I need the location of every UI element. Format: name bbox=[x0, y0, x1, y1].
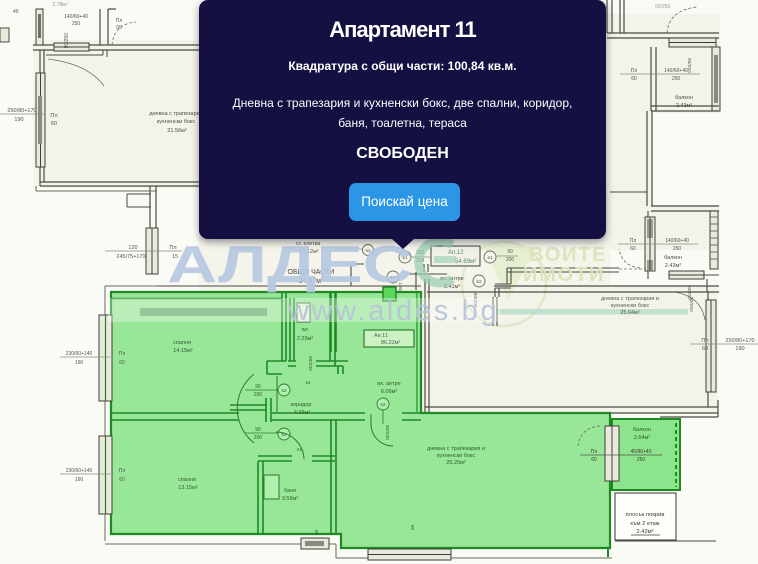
svg-text:60: 60 bbox=[119, 360, 125, 366]
svg-text:2.64м²: 2.64м² bbox=[634, 435, 650, 441]
svg-text:250: 250 bbox=[673, 246, 682, 252]
svg-text:Пл: Пл bbox=[50, 113, 57, 119]
svg-text:в2: в2 bbox=[282, 388, 287, 393]
svg-text:25.20м²: 25.20м² bbox=[446, 460, 466, 466]
svg-text:200: 200 bbox=[506, 257, 515, 263]
svg-text:60: 60 bbox=[119, 477, 125, 483]
svg-text:40/80+40: 40/80+40 bbox=[631, 449, 652, 455]
svg-text:2.43м²: 2.43м² bbox=[676, 103, 692, 109]
svg-text:Пл: Пл bbox=[701, 338, 708, 344]
svg-text:250: 250 bbox=[72, 21, 81, 27]
svg-text:60: 60 bbox=[630, 246, 636, 252]
svg-text:140/60+40: 140/60+40 bbox=[665, 238, 689, 244]
svg-text:80: 80 bbox=[314, 530, 319, 536]
svg-text:спалня: спалня bbox=[178, 477, 196, 483]
svg-text:60: 60 bbox=[702, 346, 708, 352]
svg-text:250: 250 bbox=[672, 76, 681, 82]
svg-text:80/200: 80/200 bbox=[307, 356, 313, 371]
svg-text:Ап.11: Ап.11 bbox=[374, 333, 388, 339]
svg-text:200: 200 bbox=[254, 435, 263, 441]
svg-text:3.59м²: 3.59м² bbox=[282, 496, 298, 502]
svg-text:4.35м²: 4.35м² bbox=[294, 410, 310, 416]
svg-text:230/60+140: 230/60+140 bbox=[66, 468, 93, 474]
svg-text:в2: в2 bbox=[477, 279, 482, 284]
svg-text:60: 60 bbox=[631, 76, 637, 82]
svg-text:wc: wc bbox=[301, 327, 309, 333]
svg-text:90: 90 bbox=[255, 384, 261, 390]
svg-text:Пл: Пл bbox=[591, 449, 598, 455]
svg-text:www.aldes.bg: www.aldes.bg bbox=[287, 295, 499, 327]
svg-text:14.15м²: 14.15м² bbox=[173, 348, 193, 354]
svg-text:баня: баня bbox=[284, 488, 296, 494]
svg-text:40: 40 bbox=[13, 9, 19, 15]
svg-text:86.22м²: 86.22м² bbox=[381, 340, 401, 346]
svg-text:Пл: Пл bbox=[116, 18, 123, 24]
svg-text:25.64м²: 25.64м² bbox=[620, 310, 640, 316]
svg-text:Ап.12: Ап.12 bbox=[448, 250, 464, 256]
svg-text:2.78м²: 2.78м² bbox=[53, 2, 68, 8]
svg-text:190: 190 bbox=[75, 360, 84, 366]
svg-text:спалня: спалня bbox=[173, 340, 191, 346]
svg-text:140/60+40: 140/60+40 bbox=[64, 14, 88, 20]
svg-text:190: 190 bbox=[735, 346, 744, 352]
svg-text:дневна с трапезария и: дневна с трапезария и bbox=[427, 446, 485, 452]
svg-text:250/80+170: 250/80+170 bbox=[725, 338, 754, 344]
svg-text:Пл: Пл bbox=[631, 68, 638, 74]
svg-text:Пл: Пл bbox=[119, 468, 126, 474]
svg-text:90/250: 90/250 bbox=[686, 58, 692, 73]
svg-text:кухненски бокс: кухненски бокс bbox=[157, 119, 196, 125]
svg-text:в1: в1 bbox=[488, 255, 493, 260]
svg-text:балкон: балкон bbox=[664, 255, 682, 261]
svg-text:200: 200 bbox=[254, 392, 263, 398]
svg-text:АЛДЕС: АЛДЕС bbox=[167, 236, 413, 294]
svg-text:ИМОТИ: ИМОТИ bbox=[523, 264, 605, 286]
svg-text:90: 90 bbox=[507, 249, 513, 255]
svg-text:245/75+170: 245/75+170 bbox=[116, 254, 145, 260]
svg-text:80: 80 bbox=[410, 525, 415, 531]
svg-text:ВОИТЕ: ВОИТЕ bbox=[529, 244, 607, 266]
svg-text:60: 60 bbox=[51, 121, 57, 127]
svg-text:190: 190 bbox=[14, 117, 23, 123]
svg-text:190: 190 bbox=[75, 477, 84, 483]
svg-text:90/250: 90/250 bbox=[686, 285, 692, 300]
svg-text:54.69м²: 54.69м² bbox=[455, 259, 476, 265]
svg-text:00: 00 bbox=[116, 25, 122, 31]
svg-text:230/60+140: 230/60+140 bbox=[66, 351, 93, 357]
svg-text:90/200: 90/200 bbox=[384, 425, 390, 440]
svg-text:Пл: Пл bbox=[119, 351, 126, 357]
svg-text:60: 60 bbox=[591, 457, 597, 463]
svg-text:2.29м²: 2.29м² bbox=[297, 336, 313, 342]
svg-text:в2: в2 bbox=[381, 402, 386, 407]
svg-text:Пл: Пл bbox=[630, 238, 637, 244]
svg-text:балкон: балкон bbox=[633, 427, 651, 433]
svg-text:дневна с трапезария: дневна с трапезария bbox=[149, 111, 202, 117]
svg-text:90/250: 90/250 bbox=[64, 33, 70, 49]
svg-text:120: 120 bbox=[128, 245, 137, 251]
svg-text:13.15м²: 13.15м² bbox=[178, 485, 198, 491]
svg-text:към 2 етаж: към 2 етаж bbox=[630, 521, 659, 527]
svg-text:дневна с трапезария и: дневна с трапезария и bbox=[601, 296, 659, 302]
svg-text:250: 250 bbox=[637, 457, 646, 463]
svg-text:6.06м²: 6.06м² bbox=[381, 389, 397, 395]
svg-text:балкон: балкон bbox=[675, 95, 693, 101]
svg-text:коридор: коридор bbox=[291, 402, 312, 408]
svg-text:кухненски бокс: кухненски бокс bbox=[611, 303, 650, 309]
svg-text:в1: в1 bbox=[306, 380, 311, 385]
svg-text:кухненски бокс: кухненски бокс bbox=[437, 453, 476, 459]
svg-text:21.56м²: 21.56м² bbox=[167, 128, 187, 134]
svg-text:250/80+170: 250/80+170 bbox=[7, 108, 36, 114]
svg-text:вх. антре: вх. антре bbox=[377, 381, 400, 387]
svg-text:плосък покрив: плосък покрив bbox=[626, 512, 665, 518]
svg-text:90: 90 bbox=[255, 427, 261, 433]
svg-text:2.42м²: 2.42м² bbox=[636, 529, 653, 535]
svg-text:2.43м²: 2.43м² bbox=[665, 263, 681, 269]
svg-text:140/60+40: 140/60+40 bbox=[664, 68, 688, 74]
svg-text:90/250: 90/250 bbox=[655, 4, 671, 10]
